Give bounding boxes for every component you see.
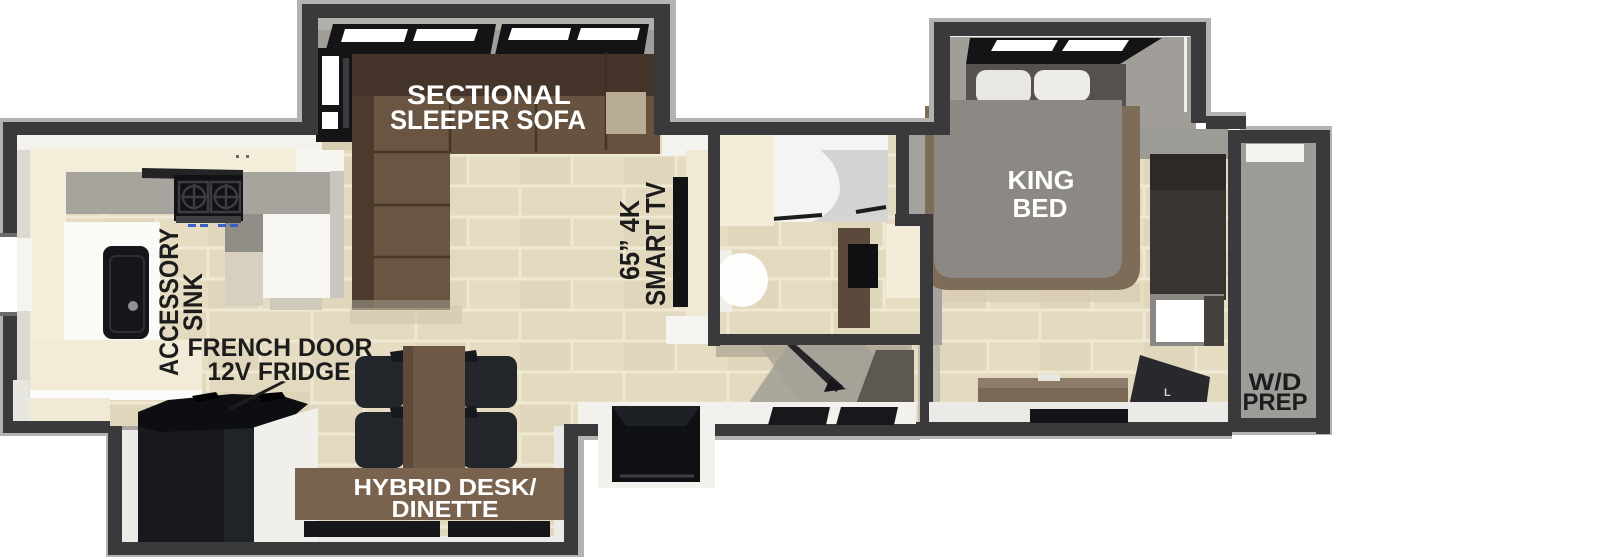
svg-text:L: L	[1164, 387, 1171, 399]
svg-text:12V FRIDGE: 12V FRIDGE	[208, 358, 351, 386]
svg-text:SMART TV: SMART TV	[640, 182, 671, 306]
svg-text:BED: BED	[1013, 193, 1068, 223]
svg-text:SINK: SINK	[178, 273, 208, 331]
svg-text:DINETTE: DINETTE	[392, 496, 499, 522]
svg-text:SLEEPER SOFA: SLEEPER SOFA	[390, 105, 586, 135]
svg-text:KING: KING	[1008, 165, 1075, 195]
svg-text:PREP: PREP	[1243, 389, 1308, 416]
